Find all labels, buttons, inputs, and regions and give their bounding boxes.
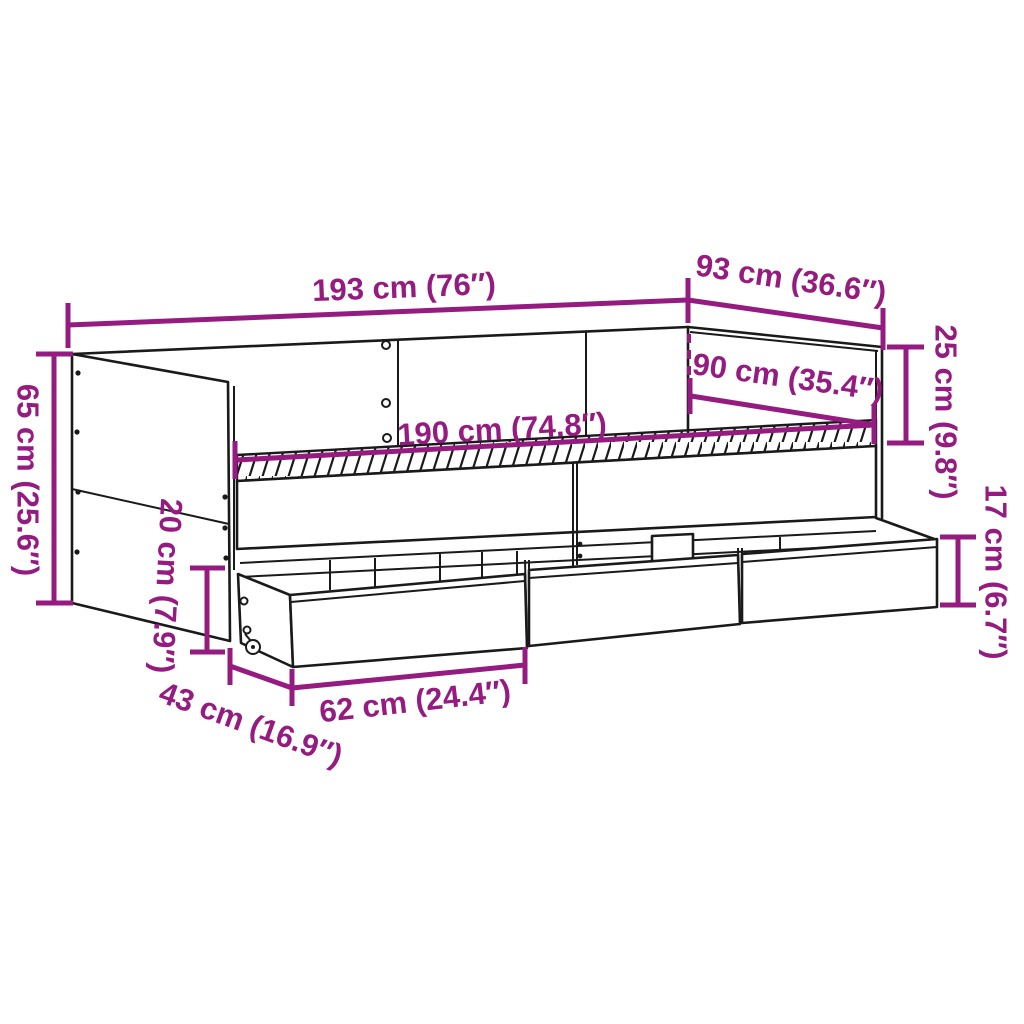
drawer-front-middle (529, 555, 740, 646)
diagram-canvas: 193 cm (76″) 93 cm (36.6″) 65 cm (25.6″)… (0, 0, 1024, 1024)
screw-dot (222, 494, 227, 499)
screw-dot (578, 554, 583, 559)
dim-drawer-depth-label: 43 cm (16.9″) (155, 675, 348, 774)
screw-dot (222, 525, 227, 530)
drawer-front-left (290, 574, 527, 667)
screw-hole (383, 434, 391, 442)
screw-hole (382, 341, 390, 349)
dim-total-depth-label: 93 cm (36.6″) (693, 247, 888, 310)
dim-total-length-label: 193 cm (76″) (312, 266, 497, 308)
back-rail-top-edge (72, 327, 688, 354)
right-rail-inner-top-edge (690, 332, 878, 351)
screw-dot (74, 549, 79, 554)
screw-dot (223, 555, 228, 560)
dim-drawer-height-label: 17 cm (6.7″) (979, 484, 1014, 659)
dimension-drawer-height (940, 537, 976, 605)
right-rail-bottom-corner (876, 518, 937, 540)
screw-dot (74, 429, 79, 434)
dim-back-height-label: 25 cm (9.8″) (929, 324, 964, 499)
drawer-left-side (238, 574, 293, 667)
screw-dot (75, 489, 80, 494)
drawer-side-hole (241, 598, 248, 605)
dim-total-height-label: 65 cm (25.6″) (11, 384, 46, 576)
dimension-back-height (887, 347, 924, 443)
daybed-dimension-diagram: 193 cm (76″) 93 cm (36.6″) 65 cm (25.6″)… (0, 0, 1024, 1024)
drawer-side-hole (244, 627, 251, 634)
right-rail-top-edge (688, 327, 882, 347)
screw-hole (382, 399, 390, 407)
screw-dot (75, 370, 80, 375)
drawer-front-right (742, 539, 937, 623)
